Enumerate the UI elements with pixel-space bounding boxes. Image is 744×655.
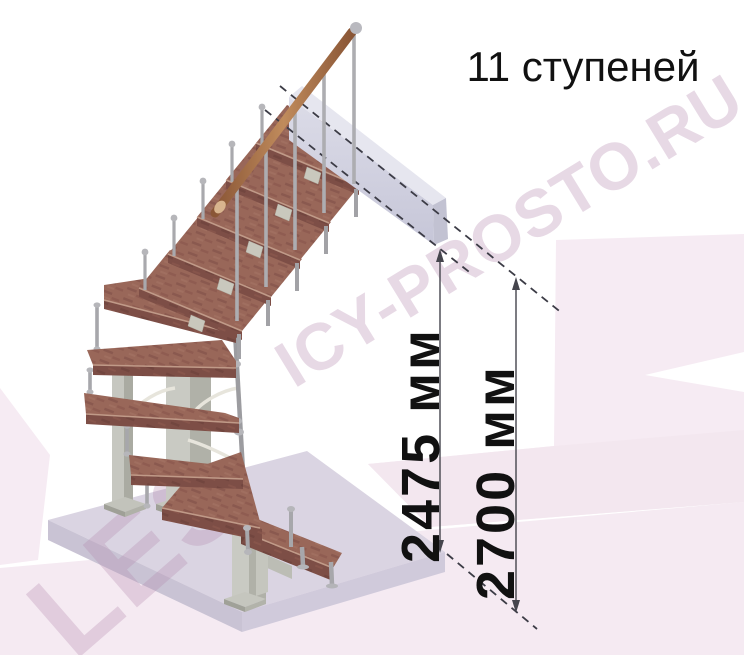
svg-text:2700 мм: 2700 мм <box>466 364 526 600</box>
svg-text:11 ступеней: 11 ступеней <box>466 43 699 90</box>
svg-text:2475 мм: 2475 мм <box>391 327 451 563</box>
